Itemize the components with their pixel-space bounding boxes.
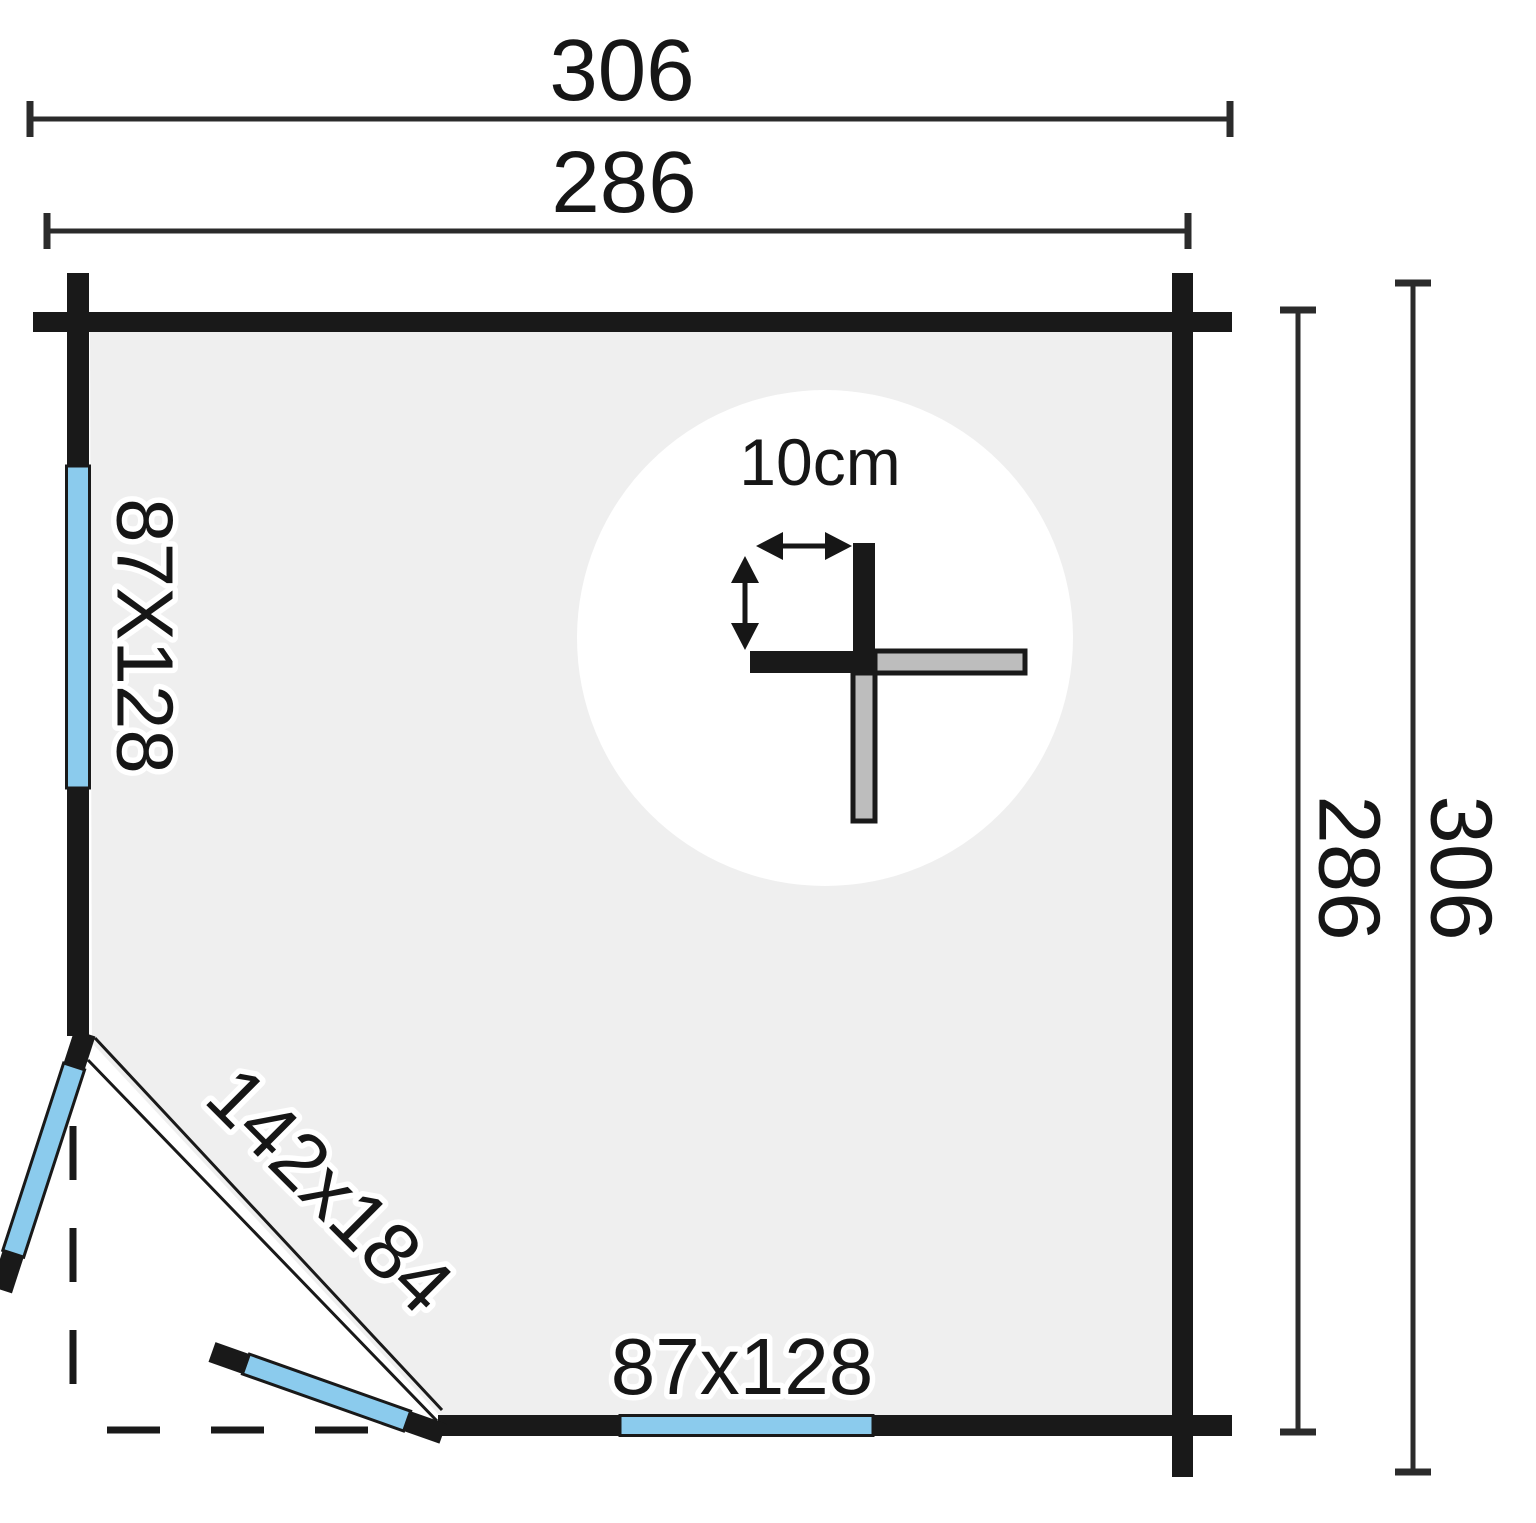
dimension-top-outer-label: 306 bbox=[549, 22, 694, 119]
log-cross-grey-right bbox=[875, 651, 1025, 673]
floor-plan-page: 306 286 286 306 87X128 87x128 142x184 10… bbox=[0, 0, 1536, 1523]
bottom-window-size-label: 87x128 bbox=[611, 1322, 873, 1411]
left-window-size-label: 87X128 bbox=[101, 498, 190, 774]
dimension-top-inner-label: 286 bbox=[551, 134, 696, 231]
right-wall bbox=[1172, 273, 1193, 1477]
top-wall bbox=[33, 312, 1232, 332]
log-cross-grey-bottom bbox=[853, 673, 875, 821]
bottom-window bbox=[620, 1416, 873, 1436]
dimension-right-outer-label: 306 bbox=[1413, 795, 1510, 940]
log-cross-black-horizontal bbox=[750, 651, 875, 673]
dimension-right-inner-label: 286 bbox=[1301, 795, 1398, 940]
wall-thickness-label: 10cm bbox=[739, 425, 900, 499]
left-window bbox=[67, 466, 90, 788]
floor-plan-drawing: 306 286 286 306 87X128 87x128 142x184 10… bbox=[0, 0, 1536, 1523]
